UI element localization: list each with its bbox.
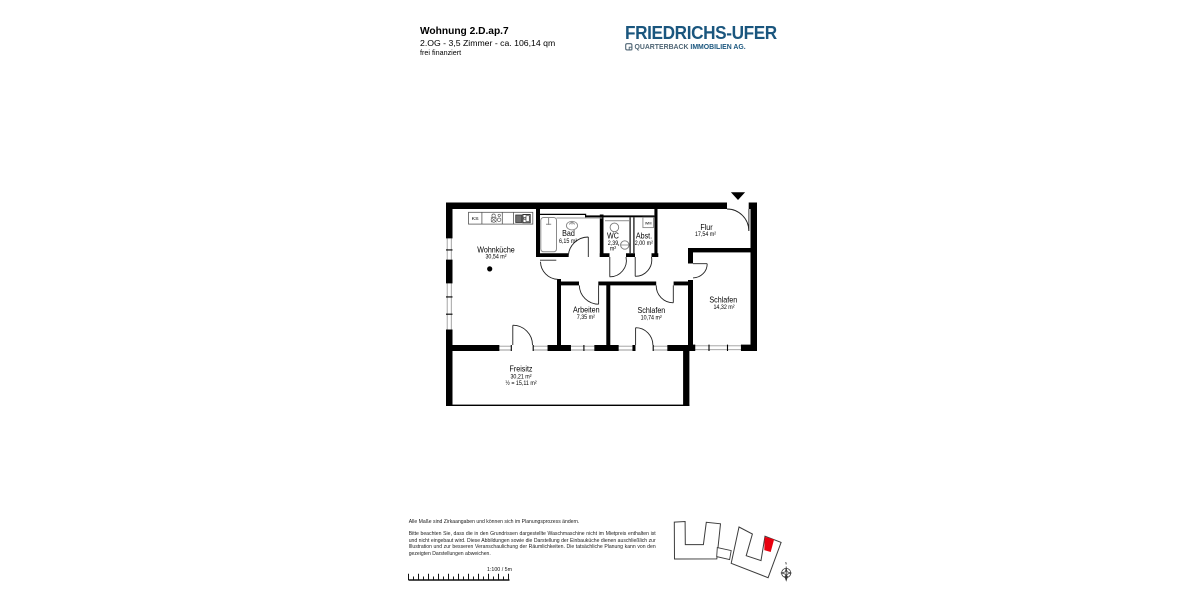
svg-text:6,15 m²: 6,15 m² — [559, 238, 577, 244]
svg-text:17,54 m²: 17,54 m² — [695, 231, 716, 237]
svg-text:KS: KS — [472, 216, 479, 221]
svg-text:Schlafen: Schlafen — [638, 305, 666, 315]
svg-text:Freisitz: Freisitz — [510, 364, 533, 374]
svg-text:2,00 m²: 2,00 m² — [635, 241, 653, 247]
svg-text:N: N — [785, 561, 788, 565]
svg-text:14,32 m²: 14,32 m² — [713, 304, 734, 310]
svg-text:Schlafen: Schlafen — [709, 295, 737, 305]
svg-text:Abst.: Abst. — [636, 231, 652, 241]
svg-text:Wohnküche: Wohnküche — [477, 245, 515, 255]
svg-text:WC: WC — [607, 231, 619, 241]
svg-text:WM: WM — [645, 221, 652, 225]
svg-text:30,21 m²: 30,21 m² — [510, 374, 531, 380]
svg-text:m²: m² — [610, 246, 616, 252]
svg-text:10,74 m²: 10,74 m² — [641, 315, 662, 321]
svg-text:Bad: Bad — [562, 228, 575, 238]
svg-text:Arbeiten: Arbeiten — [573, 305, 600, 315]
svg-text:½ = 15,11 m²: ½ = 15,11 m² — [505, 380, 536, 388]
svg-text:30,54 m²: 30,54 m² — [485, 254, 506, 260]
svg-text:7,35 m²: 7,35 m² — [577, 315, 595, 321]
